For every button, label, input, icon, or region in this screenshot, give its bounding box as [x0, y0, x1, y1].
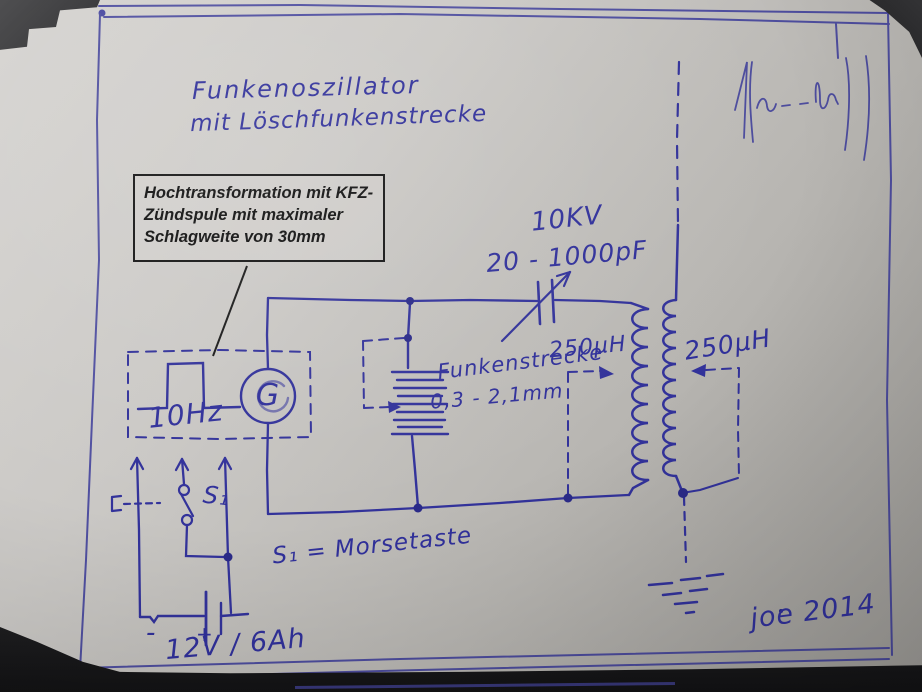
- ground-symbol: [649, 497, 723, 613]
- coil-primary-symbol: [629, 303, 648, 495]
- battery-minus-sign: -: [146, 618, 156, 648]
- spark-gap-pointer: [363, 338, 404, 413]
- switch-symbol: [112, 485, 193, 525]
- photo-of-schematic: Funkenoszillator mit Löschfunkenstrecke …: [0, 0, 922, 692]
- switch-label: S₁: [202, 481, 232, 512]
- generator-letter: G: [254, 378, 282, 413]
- annotation-callout-box: Hochtransformation mit KFZ- Zündspule mi…: [133, 174, 385, 262]
- antenna-dashed-lead: [677, 62, 679, 225]
- callout-leader-line: [213, 266, 247, 356]
- coil-secondary-symbol: [663, 225, 682, 491]
- callout-line-3: Schlagweite von 30mm: [144, 227, 374, 249]
- damped-wave-sketch: [735, 56, 869, 160]
- callout-line-1: Hochtransformation mit KFZ-: [144, 183, 374, 205]
- coil-secondary-pointer: [688, 364, 739, 492]
- variable-capacitor-arrow: [502, 272, 570, 341]
- callout-line-2: Zündspule mit maximaler: [144, 205, 374, 227]
- title-line-1: Funkenoszillator: [192, 71, 420, 105]
- coil-primary-pointer: [568, 366, 614, 494]
